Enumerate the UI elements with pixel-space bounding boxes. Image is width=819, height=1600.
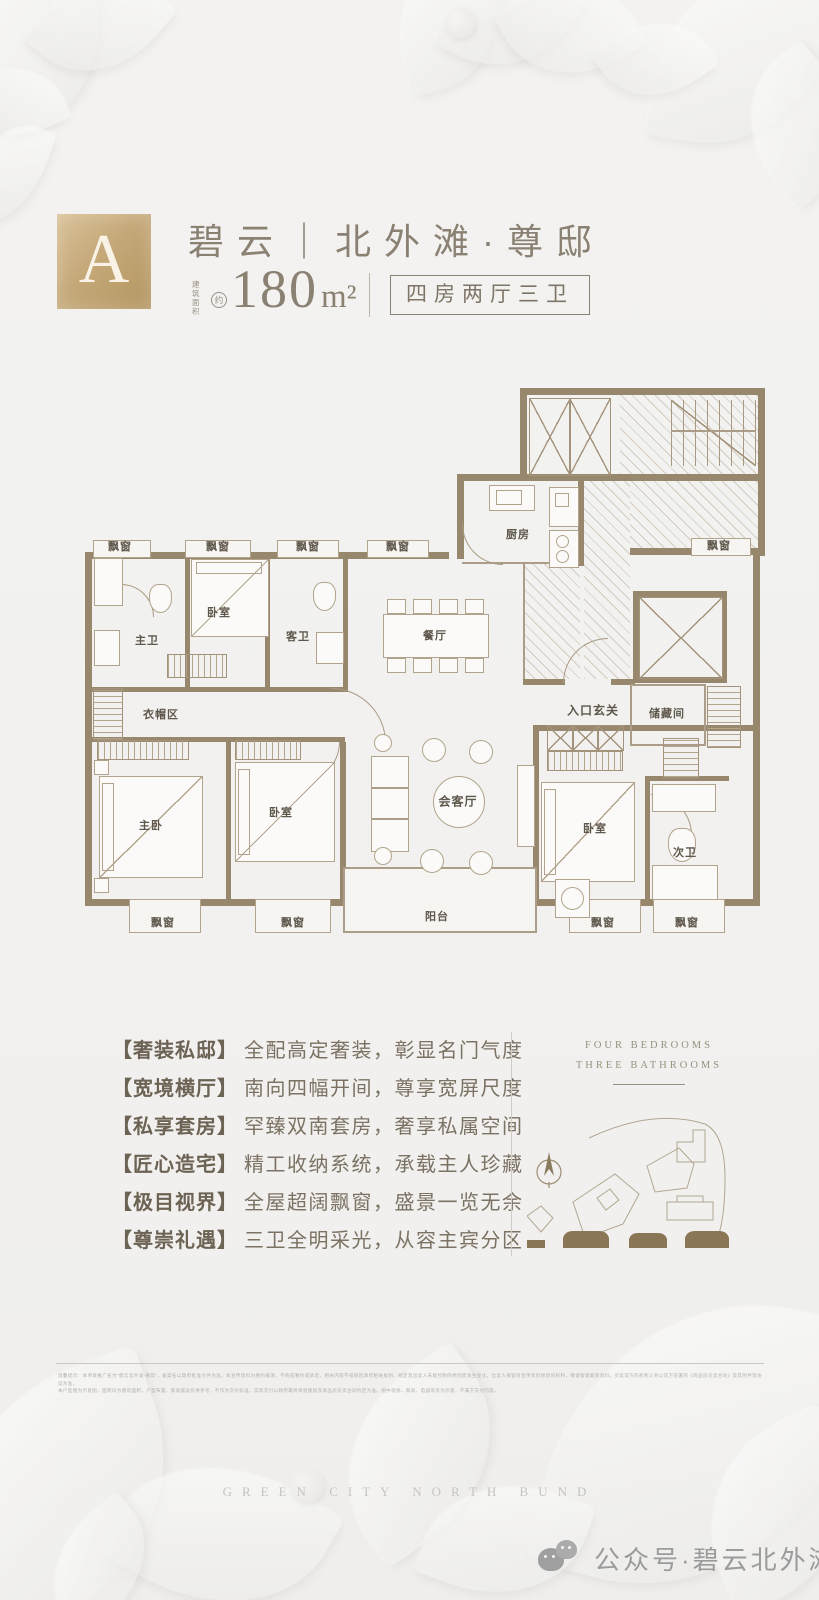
armchair [422,738,446,762]
feature-desc: 全配高定奢装，彰显名门气度 [244,1034,524,1063]
feature-tag: 【奢装私邸】 [112,1034,238,1063]
floor-plan: 飘窗 飘窗 飘窗 飘窗 飘窗 主卫 卧室 客卫 厨房 餐厅 衣帽区 入口玄关 储… [85,388,767,938]
feature-row: 【私享套房】 罕臻双南套房，奢享私属空间 [112,1105,524,1143]
feature-list: 【奢装私邸】 全配高定奢装，彰显名门气度 【宽境横厅】 南向四幅开间，尊享宽屏尺… [112,1029,524,1257]
feature-row: 【极目视界】 全屋超阔飘窗，盛景一览无余 [112,1181,524,1219]
shoe-cabinet [597,725,624,751]
feature-desc: 全屋超阔飘窗，盛景一览无余 [244,1186,524,1215]
door-arc [462,524,503,565]
sofa [371,756,409,852]
site-plan [527,1106,779,1271]
bathroom-sink [94,630,120,666]
wardrobe [93,688,123,740]
feature-tag: 【极目视界】 [112,1186,238,1215]
disclaimer-text: 温馨提示：本项目推广名为“碧云北外滩·尊邸”，备案名以政府批准文件为准。本宣传资… [58,1372,762,1395]
compass-icon [537,1152,561,1188]
area-unit: m² [321,279,357,316]
wall [85,552,92,906]
room-label: 飘窗 [206,538,230,554]
header-divider [369,273,370,317]
elevator-box [639,597,723,679]
wall [758,388,765,556]
disclaimer-line1: 温馨提示：本项目推广名为“碧云北外滩·尊邸”，备案名以政府批准文件为准。本宣传资… [58,1372,762,1387]
feature-row: 【匠心造宅】 精工收纳系统，承载主人珍藏 [112,1143,524,1181]
shower [94,558,123,606]
wall [226,742,231,899]
room-label: 飘窗 [281,914,305,930]
english-watermark: GREEN CITY NORTH BUND [0,1484,819,1500]
type-letter: A [79,225,130,295]
shoe-cabinet [547,725,574,751]
side-panel-line1: FOUR BEDROOMS [520,1036,778,1056]
wall [85,687,348,692]
dining-chair [465,599,484,614]
nightstand [94,878,109,893]
wall [520,388,527,481]
feature-desc: 南向四幅开间，尊享宽屏尺度 [244,1072,524,1101]
shoe-cabinet [572,725,599,751]
dining-chair [387,658,406,673]
kitchen-sink [489,485,535,511]
type-a-badge: A [57,214,151,309]
room-label: 会客厅 [438,793,477,810]
partition-line [523,564,525,679]
side-panel-line2: THREE BATHROOMS [520,1056,778,1076]
room-label: 阳台 [425,908,449,924]
room-label: 飘窗 [108,538,132,554]
room-label: 入口玄关 [567,702,619,719]
wechat-icon [538,1538,582,1578]
poster-page: A 碧云｜北外滩·尊邸 建筑面积 约 180 m² 四房两厅三卫 [0,0,819,1600]
layout-summary-box: 四房两厅三卫 [390,275,590,315]
room-label: 飘窗 [675,914,699,930]
room-label: 餐厅 [423,627,447,643]
shelving [663,738,699,778]
room-label: 厨房 [506,526,530,542]
floral-decoration [0,111,57,238]
toilet [313,582,336,611]
area-number: 180 [231,258,318,320]
room-label: 飘窗 [386,538,410,554]
feature-desc: 罕臻双南套房，奢享私属空间 [244,1110,524,1139]
wardrobe [547,751,623,771]
feature-row: 【尊崇礼遇】 三卫全明采光，从容主宾分区 [112,1219,524,1257]
room-label: 主卫 [135,632,159,648]
wardrobe [167,654,227,678]
area-value: 180 m² [231,258,357,320]
room-label: 飘窗 [296,538,320,554]
nightstand [94,760,109,775]
armchair [469,851,493,875]
site-buildings [527,1231,729,1248]
wall [520,388,765,395]
washer [555,879,590,918]
feature-tag: 【匠心造宅】 [112,1148,238,1177]
wechat-account-line: 公众号·碧云北外滩 [538,1538,819,1578]
footer-rule [56,1363,764,1364]
elevator-wall [723,591,727,683]
bed [191,559,269,637]
dining-chair [387,599,406,614]
feature-row: 【奢装私邸】 全配高定奢装，彰显名门气度 [112,1029,524,1067]
wardrobe [235,740,301,760]
room-label: 次卫 [673,844,697,860]
room-label: 主卧 [139,817,163,833]
feature-tag: 【宽境横厅】 [112,1072,238,1101]
feature-desc: 三卫全明采光，从容主宾分区 [244,1224,524,1253]
armchair [420,849,444,873]
wall [457,474,464,559]
shower [652,865,718,900]
feature-tag: 【私享套房】 [112,1110,238,1139]
dining-chair [439,599,458,614]
tv-cabinet [517,765,535,847]
dining-chair [465,658,484,673]
dining-chair [413,658,432,673]
kitchen-stove [549,530,579,568]
floral-decoration [445,8,475,38]
approx-circle: 约 [211,292,227,308]
vertical-divider [511,1032,512,1256]
shelving [707,686,741,748]
area-prefix-label: 建筑面积 [192,280,210,316]
room-label: 客卫 [286,628,310,644]
wall [645,781,650,899]
armchair [469,740,493,764]
feature-tag: 【尊崇礼遇】 [112,1224,238,1253]
room-label: 卧室 [207,604,231,620]
stair-rail [671,400,756,466]
wardrobe [97,740,189,760]
side-table [374,847,392,865]
room-label: 储藏间 [649,705,685,721]
dining-chair [439,658,458,673]
room-label: 飘窗 [707,537,731,553]
wall [523,679,565,685]
room-label: 卧室 [269,804,293,820]
room-label: 飘窗 [151,914,175,930]
toilet [149,584,172,613]
feature-desc: 精工收纳系统，承载主人珍藏 [244,1148,524,1177]
room-label: 卧室 [583,820,607,836]
elevator-box [529,398,571,476]
room-label: 飘窗 [591,914,615,930]
site-boundary [527,1118,725,1248]
stair-landing-line [671,430,756,432]
kitchen-counter [549,487,579,527]
dining-chair [413,599,432,614]
disclaimer-line2: 本户型图为示意图，面积均为建筑面积，户型布置、家具摆设仅供参考，不作为交付标准，… [58,1387,762,1395]
side-table [374,734,392,752]
side-panel-rule [613,1084,685,1085]
elevator-box [569,398,611,476]
feature-row: 【宽境横厅】 南向四幅开间，尊享宽屏尺度 [112,1067,524,1105]
bathroom-sink [316,632,344,664]
side-panel: FOUR BEDROOMS THREE BATHROOMS [520,1036,778,1085]
wall [343,559,348,690]
wechat-account-label: 公众号·碧云北外滩 [594,1540,819,1577]
room-label: 衣帽区 [143,706,179,722]
bathroom-vanity [652,784,716,812]
